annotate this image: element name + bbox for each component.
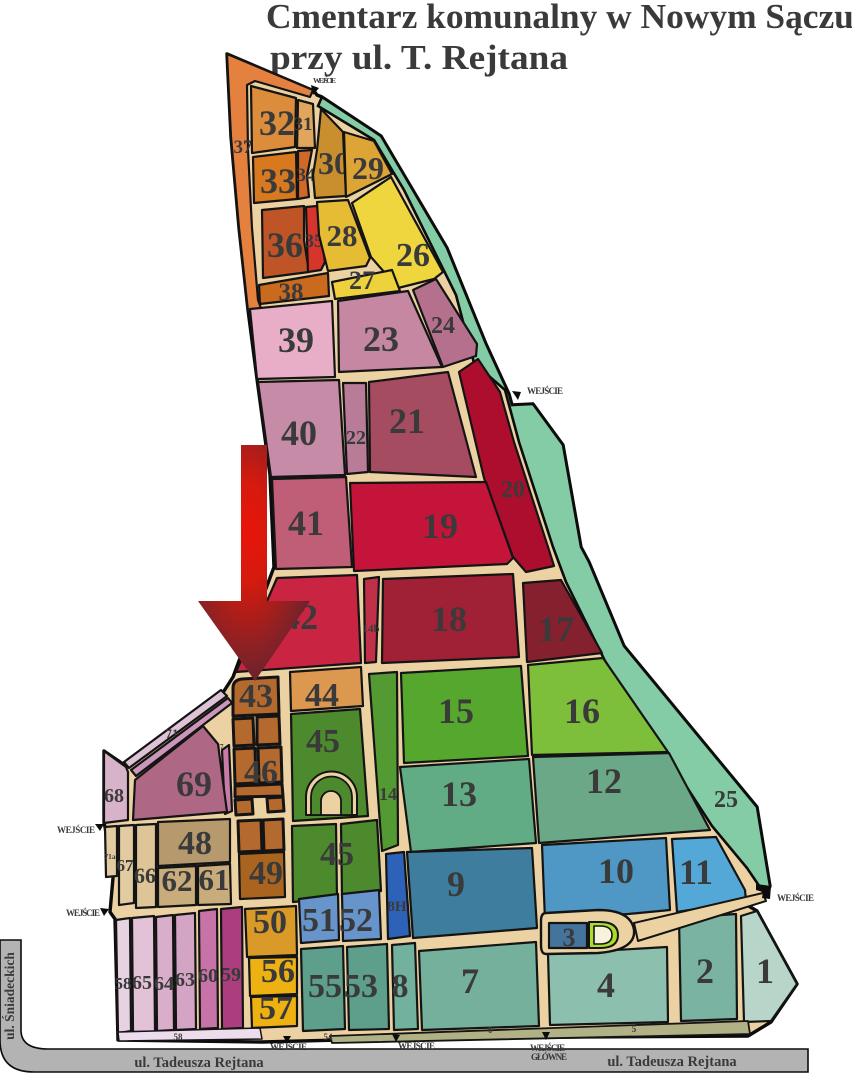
svg-text:44: 44 — [305, 677, 339, 714]
svg-text:54: 54 — [324, 1032, 334, 1042]
svg-text:23: 23 — [363, 319, 399, 359]
svg-text:24: 24 — [431, 313, 455, 339]
svg-text:29: 29 — [352, 150, 384, 186]
svg-text:15: 15 — [438, 691, 474, 731]
svg-text:38: 38 — [279, 279, 304, 306]
svg-text:45: 45 — [320, 836, 354, 873]
svg-text:49: 49 — [249, 855, 283, 892]
svg-text:67: 67 — [117, 856, 135, 875]
svg-text:14b: 14b — [362, 623, 379, 635]
svg-text:58: 58 — [115, 974, 132, 993]
svg-text:9: 9 — [447, 864, 465, 904]
svg-text:Cmentarz komunalny w Nowym Sąc: Cmentarz komunalny w Nowym Sączu — [266, 0, 852, 36]
svg-text:40: 40 — [281, 413, 317, 453]
svg-text:53: 53 — [344, 968, 378, 1005]
svg-text:6: 6 — [488, 1025, 493, 1035]
svg-text:52: 52 — [339, 902, 373, 939]
svg-text:32: 32 — [259, 103, 295, 143]
svg-text:WEJŚCIE: WEJŚCIE — [398, 1041, 435, 1051]
svg-text:12: 12 — [586, 761, 622, 801]
svg-text:59: 59 — [221, 964, 241, 986]
svg-text:1: 1 — [756, 951, 774, 991]
svg-text:WEJŚCIE: WEJŚCIE — [313, 75, 336, 85]
svg-text:WEJŚCIE: WEJŚCIE — [777, 893, 814, 903]
svg-text:31: 31 — [294, 114, 313, 135]
svg-text:8H: 8H — [387, 899, 407, 915]
svg-text:3: 3 — [563, 923, 576, 952]
svg-text:45: 45 — [306, 723, 340, 760]
svg-text:GŁÓWNE: GŁÓWNE — [531, 1052, 567, 1062]
svg-text:7: 7 — [461, 961, 479, 1001]
svg-text:39: 39 — [278, 320, 314, 360]
svg-text:61: 61 — [199, 862, 230, 897]
svg-text:37: 37 — [234, 137, 254, 158]
svg-text:55: 55 — [308, 968, 342, 1005]
svg-text:60: 60 — [198, 965, 218, 987]
svg-text:63: 63 — [175, 969, 195, 991]
svg-text:50: 50 — [253, 904, 287, 941]
svg-text:ul. Tadeusza Rejtana: ul. Tadeusza Rejtana — [134, 1055, 264, 1071]
svg-text:33: 33 — [260, 161, 296, 201]
svg-text:11: 11 — [679, 852, 713, 892]
svg-text:43: 43 — [239, 678, 273, 715]
svg-text:przy ul. T. Rejtana: przy ul. T. Rejtana — [270, 37, 568, 77]
svg-text:19: 19 — [422, 506, 458, 546]
svg-text:62: 62 — [162, 863, 193, 898]
svg-text:48: 48 — [178, 825, 212, 862]
svg-text:51: 51 — [302, 902, 336, 939]
svg-text:14: 14 — [379, 784, 397, 804]
svg-text:22: 22 — [346, 427, 366, 449]
svg-text:25: 25 — [714, 787, 738, 813]
svg-text:28: 28 — [327, 218, 358, 253]
svg-text:WEJŚCIE: WEJŚCIE — [527, 386, 563, 396]
svg-text:66: 66 — [134, 863, 156, 888]
svg-text:10: 10 — [598, 851, 634, 891]
svg-text:16: 16 — [564, 691, 600, 731]
svg-text:WEJŚCIE: WEJŚCIE — [270, 1042, 307, 1052]
svg-text:5: 5 — [632, 1024, 637, 1034]
svg-text:65: 65 — [132, 972, 152, 994]
svg-text:17: 17 — [538, 609, 574, 649]
svg-text:57: 57 — [259, 990, 293, 1027]
svg-text:71a: 71a — [104, 852, 116, 861]
svg-text:46: 46 — [244, 754, 278, 791]
svg-text:WEJŚCIE: WEJŚCIE — [57, 825, 95, 835]
svg-text:4: 4 — [597, 965, 615, 1005]
svg-text:ul. Tadeusza Rejtana: ul. Tadeusza Rejtana — [607, 1054, 737, 1070]
svg-text:68: 68 — [104, 785, 124, 807]
svg-text:56: 56 — [261, 953, 295, 990]
svg-text:27: 27 — [349, 266, 375, 295]
svg-text:41: 41 — [288, 503, 324, 543]
svg-text:2: 2 — [696, 951, 714, 991]
svg-text:69: 69 — [176, 764, 212, 804]
svg-text:26: 26 — [396, 237, 430, 274]
svg-text:20: 20 — [501, 477, 525, 503]
svg-text:64: 64 — [154, 973, 174, 995]
svg-text:13: 13 — [441, 774, 477, 814]
svg-text:8: 8 — [392, 968, 409, 1005]
svg-text:18: 18 — [431, 599, 467, 639]
svg-text:ul. Śniadeckich: ul. Śniadeckich — [2, 952, 17, 1040]
svg-text:WEJŚCIE: WEJŚCIE — [66, 908, 100, 918]
svg-text:36: 36 — [267, 225, 303, 265]
svg-text:58: 58 — [174, 1032, 184, 1042]
svg-text:21: 21 — [389, 401, 425, 441]
